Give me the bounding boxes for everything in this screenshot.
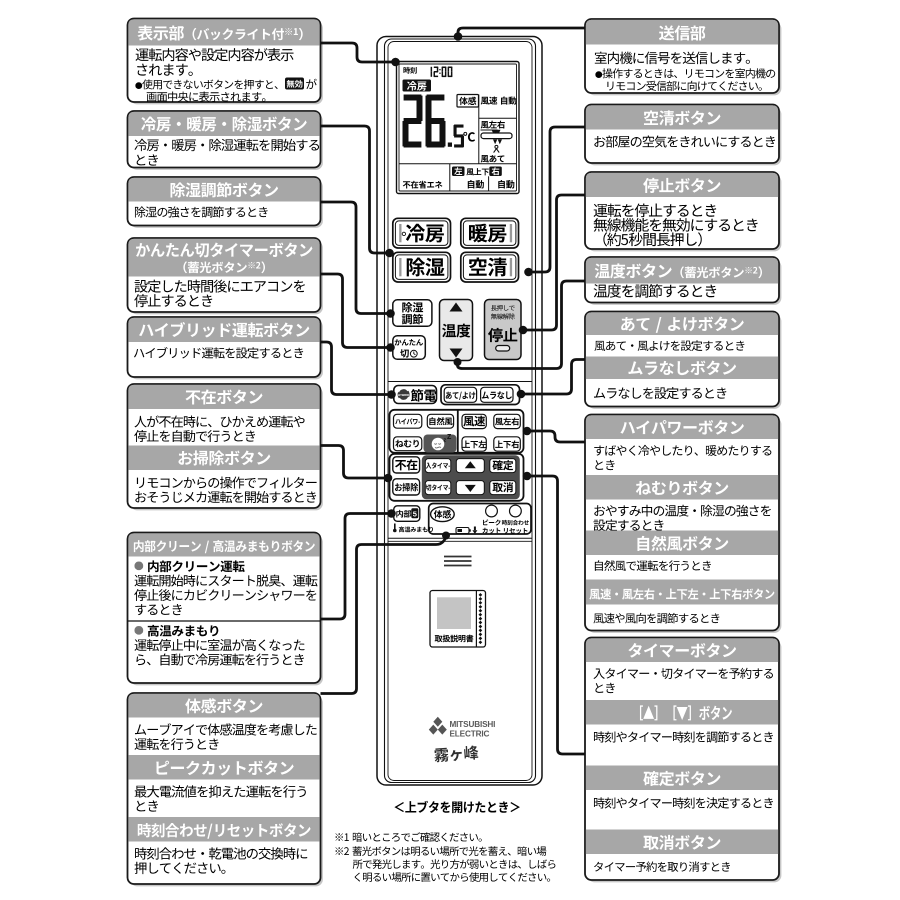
- svg-text:ELECTRIC: ELECTRIC: [450, 730, 490, 739]
- svg-text:5: 5: [413, 509, 417, 518]
- svg-text:HYBRID: HYBRID: [398, 393, 410, 397]
- svg-text:MITSUBISHI: MITSUBISHI: [450, 720, 496, 729]
- svg-text:Z: Z: [447, 434, 452, 441]
